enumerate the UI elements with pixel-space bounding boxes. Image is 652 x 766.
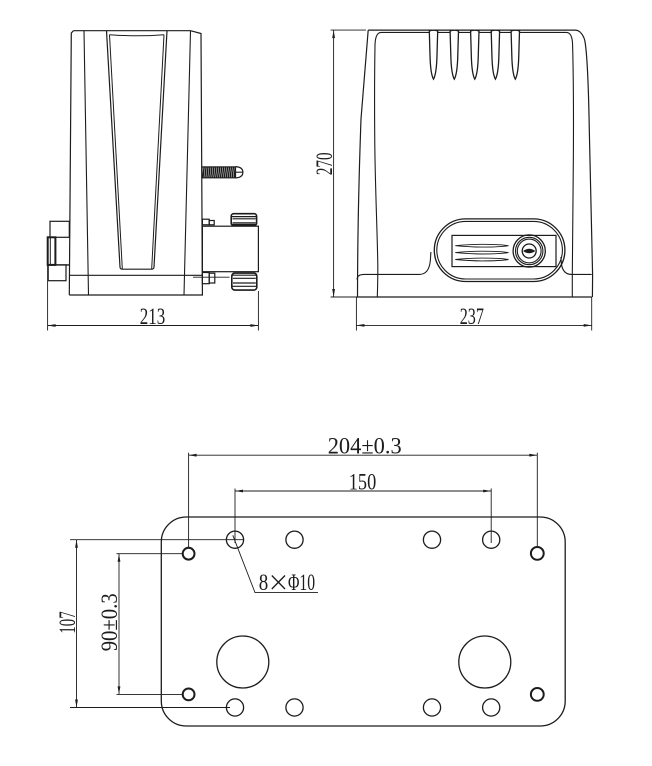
- svg-text:90±0.3: 90±0.3: [97, 593, 122, 651]
- svg-text:237: 237: [460, 304, 484, 329]
- svg-text:Φ10: Φ10: [288, 570, 315, 595]
- svg-text:8: 8: [259, 570, 269, 595]
- svg-text:213: 213: [140, 304, 166, 329]
- svg-text:107: 107: [55, 611, 80, 633]
- svg-text:270: 270: [312, 153, 337, 176]
- svg-text:150: 150: [349, 469, 376, 494]
- svg-text:204±0.3: 204±0.3: [328, 433, 402, 458]
